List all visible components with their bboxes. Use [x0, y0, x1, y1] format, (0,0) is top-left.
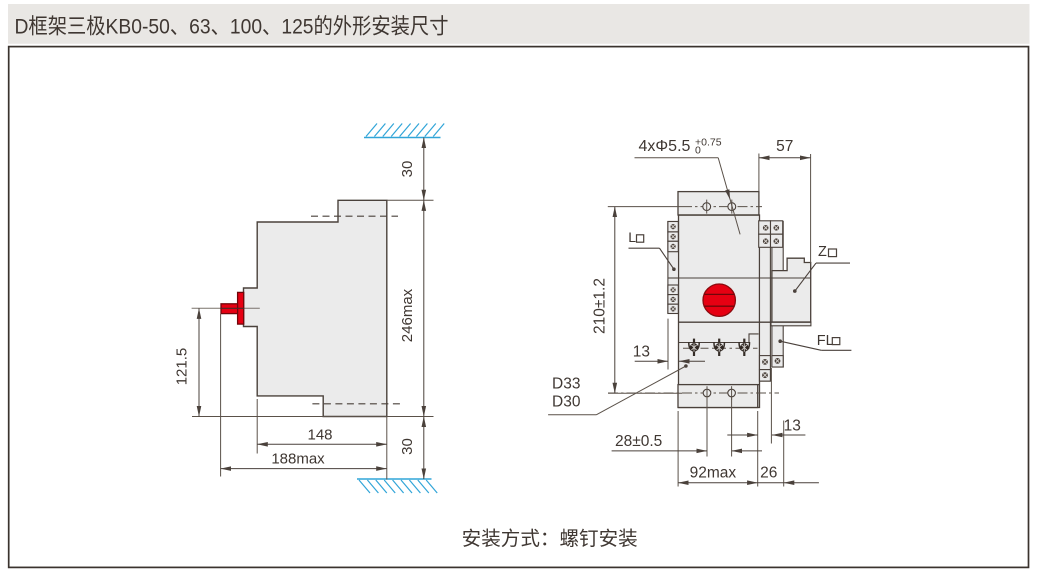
svg-text:57: 57	[776, 138, 793, 155]
svg-text:FL: FL	[817, 333, 834, 349]
svg-text:121.5: 121.5	[174, 348, 191, 386]
svg-text:D框架三极KB0-50、63、100、125的外形安装尺寸: D框架三极KB0-50、63、100、125的外形安装尺寸	[15, 15, 449, 39]
svg-text:安装方式：螺钉安装: 安装方式：螺钉安装	[462, 528, 638, 550]
svg-text:28±0.5: 28±0.5	[615, 433, 662, 450]
svg-text:30: 30	[399, 161, 416, 178]
svg-text:4xΦ5.5: 4xΦ5.5	[639, 138, 691, 155]
svg-text:13: 13	[633, 344, 650, 361]
svg-text:210±1.2: 210±1.2	[592, 278, 609, 334]
svg-text:92max: 92max	[690, 465, 737, 482]
svg-text:D30: D30	[552, 394, 581, 411]
svg-text:0: 0	[695, 145, 701, 157]
svg-text:26: 26	[760, 465, 777, 482]
svg-text:13: 13	[784, 418, 801, 435]
svg-text:L: L	[628, 229, 636, 245]
svg-text:Z: Z	[818, 244, 827, 260]
svg-text:148: 148	[307, 427, 332, 444]
svg-text:246max: 246max	[399, 288, 416, 342]
svg-text:D33: D33	[552, 376, 580, 393]
svg-text:30: 30	[399, 438, 416, 455]
svg-text:188max: 188max	[271, 451, 325, 468]
